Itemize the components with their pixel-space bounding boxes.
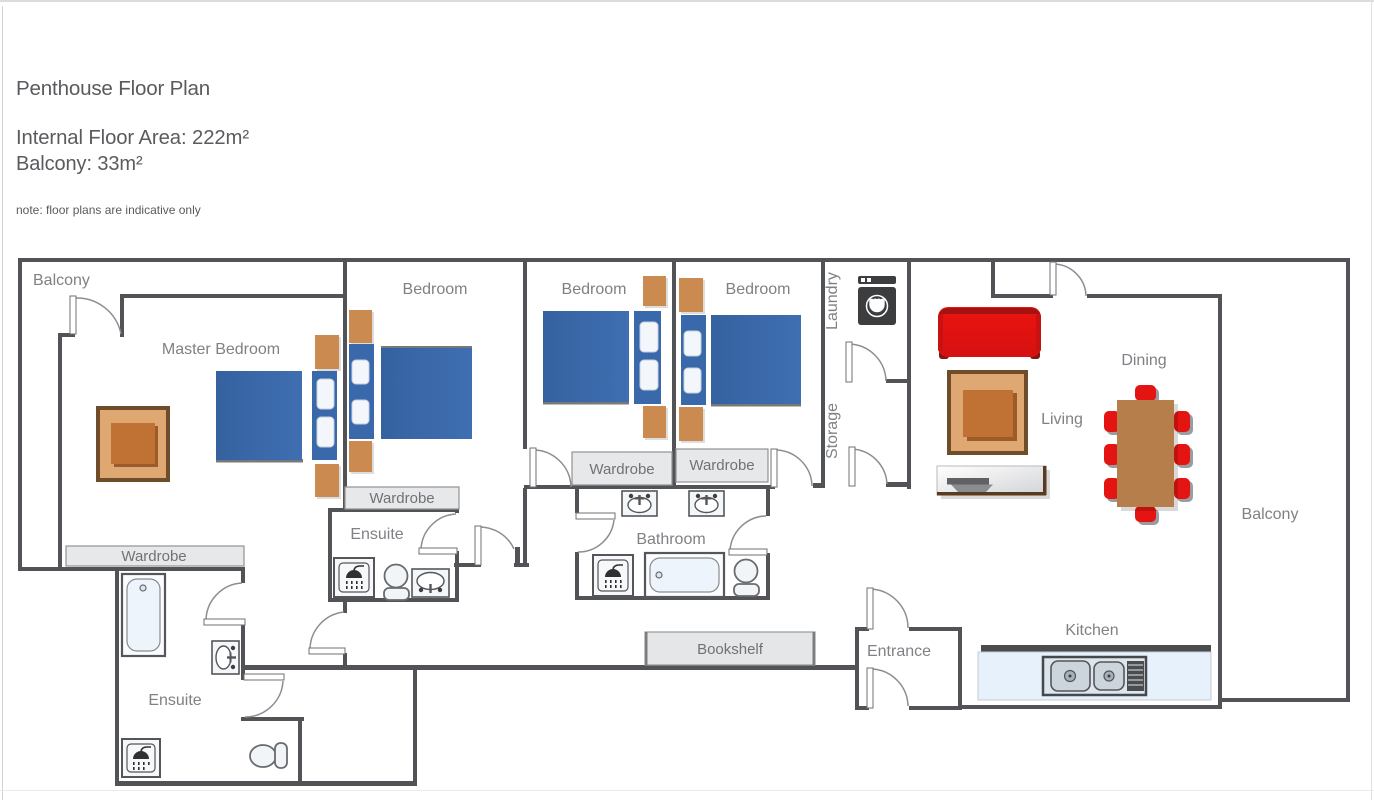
svg-text:Laundry: Laundry	[824, 272, 841, 330]
svg-text:Balcony: Balcony	[33, 272, 90, 289]
svg-text:Bedroom: Bedroom	[562, 281, 627, 298]
svg-text:Bedroom: Bedroom	[403, 281, 468, 298]
svg-text:Penthouse Floor Plan: Penthouse Floor Plan	[16, 77, 210, 100]
svg-text:Kitchen: Kitchen	[1065, 622, 1118, 639]
svg-text:Bookshelf: Bookshelf	[697, 641, 764, 658]
svg-text:Ensuite: Ensuite	[148, 692, 201, 709]
svg-text:Entrance: Entrance	[867, 643, 931, 660]
svg-text:Dining: Dining	[1121, 352, 1166, 369]
svg-text:Wardrobe: Wardrobe	[689, 457, 754, 474]
svg-text:Balcony: 33m²: Balcony: 33m²	[16, 153, 143, 175]
svg-text:Wardrobe: Wardrobe	[121, 548, 186, 565]
svg-text:Bathroom: Bathroom	[636, 531, 705, 548]
svg-text:Storage: Storage	[824, 403, 841, 459]
svg-text:Master Bedroom: Master Bedroom	[162, 341, 280, 358]
svg-text:Wardrobe: Wardrobe	[589, 461, 654, 478]
svg-text:note: floor plans are indicati: note: floor plans are indicative only	[16, 203, 201, 217]
svg-text:Living: Living	[1041, 411, 1083, 428]
svg-text:Wardrobe: Wardrobe	[369, 490, 434, 507]
svg-text:Internal Floor Area: 222m²: Internal Floor Area: 222m²	[16, 127, 249, 149]
svg-text:Bedroom: Bedroom	[726, 281, 791, 298]
svg-text:Balcony: Balcony	[1242, 506, 1299, 523]
svg-text:Ensuite: Ensuite	[350, 526, 403, 543]
